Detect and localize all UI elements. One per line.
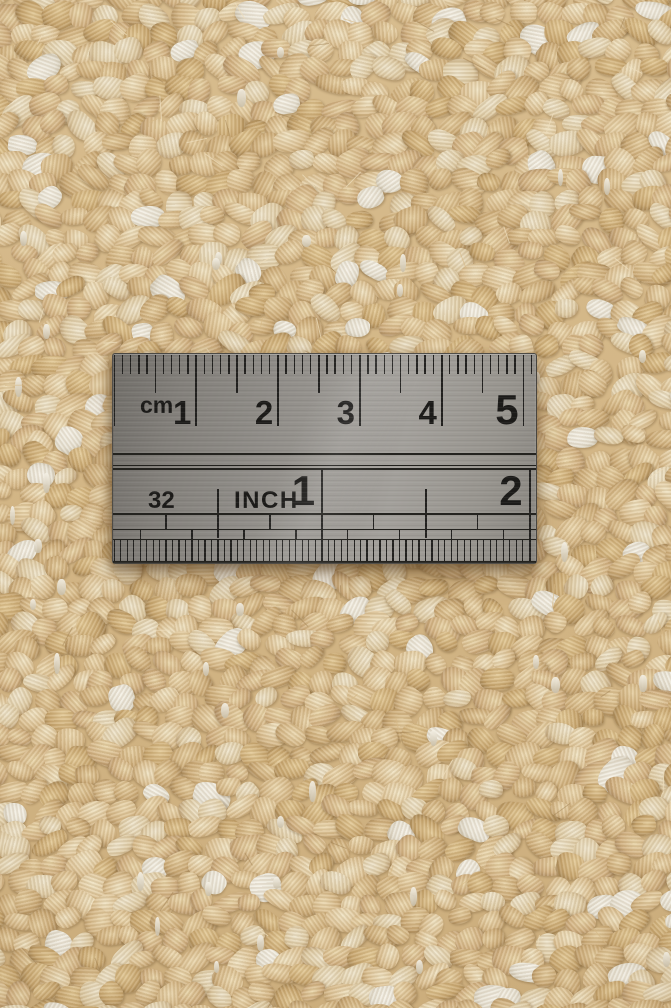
cm-tick — [163, 355, 164, 374]
carpet-warp-gap — [43, 324, 50, 339]
cm-tick — [122, 355, 123, 374]
inch-tick-32nd — [289, 540, 290, 561]
cm-tick — [195, 355, 197, 426]
inch-tick-32nd — [386, 540, 387, 561]
cm-tick — [514, 355, 515, 374]
inch-tick-32nd — [185, 540, 186, 561]
carpet-warp-gap — [558, 169, 564, 186]
cm-tick — [523, 355, 525, 426]
inch-tick-32nd — [379, 540, 380, 561]
inch-tick-32nd — [341, 540, 342, 561]
inch-tick-eighth — [191, 529, 192, 539]
cm-tick — [351, 355, 352, 374]
inch-tick-32nd — [114, 540, 115, 561]
cm-tick — [433, 355, 434, 374]
scale-separator-line — [113, 465, 536, 466]
carpet-warp-gap — [15, 377, 22, 397]
carpet-fiber — [626, 141, 636, 143]
carpet-fiber — [340, 585, 342, 598]
cm-tick — [171, 355, 172, 374]
inch-tick-32nd — [140, 540, 141, 561]
inch-tick-32nd — [153, 540, 154, 561]
cm-tick — [334, 355, 335, 374]
inch-tick-32nd — [483, 540, 484, 561]
inch-tick-32nd — [165, 540, 166, 561]
cm-number: 1 — [173, 396, 190, 429]
inch-tick-32nd — [496, 540, 497, 561]
inch-tick-32nd — [457, 540, 458, 561]
carpet-warp-gap — [20, 231, 27, 246]
carpet-warp-gap — [57, 579, 66, 596]
cm-tick — [253, 355, 254, 374]
carpet-warp-gap — [205, 882, 212, 896]
metal-ruler: cm 32 INCH 1234512 — [112, 353, 537, 564]
cm-tick — [367, 355, 368, 374]
carpet-knot — [554, 298, 579, 319]
cm-tick — [179, 355, 180, 374]
inch-tick-32nd — [431, 540, 432, 561]
cm-tick — [302, 355, 303, 374]
cm-number: 5 — [495, 389, 517, 431]
carpet-fiber — [153, 629, 170, 630]
cm-tick — [326, 355, 327, 374]
cm-tick — [416, 355, 417, 374]
inch-tick-32nd — [230, 540, 231, 561]
inch-tick-32nd — [159, 540, 160, 561]
carpet-warp-gap — [639, 675, 646, 692]
inch-tick-32nd — [315, 540, 316, 561]
inch-tick-32nd — [522, 540, 523, 561]
inch-number: 2 — [499, 470, 521, 512]
inch-tick-32nd — [120, 540, 121, 561]
inch-tick-32nd — [373, 540, 374, 561]
inch-tick-32nd — [503, 540, 504, 561]
carpet-warp-gap — [137, 872, 145, 891]
inch-tick-32nd — [191, 540, 192, 561]
inch-tick-32nd — [295, 540, 296, 561]
inch-tick-32nd — [438, 540, 439, 561]
inch-tick-32nd — [334, 540, 335, 561]
cm-tick — [384, 355, 385, 374]
carpet-warp-gap — [214, 961, 219, 972]
inch-tick-32nd — [250, 540, 251, 561]
carpet-knot — [664, 728, 671, 744]
inch-tick-32nd — [412, 540, 413, 561]
inch-tick-32nd — [405, 540, 406, 561]
cm-tick — [236, 355, 238, 393]
cm-tick — [359, 355, 361, 426]
cm-tick — [244, 355, 245, 374]
carpet-knot — [288, 148, 316, 171]
cm-number: 2 — [255, 396, 272, 429]
inch-tick-eighth — [347, 529, 348, 539]
carpet-knot — [646, 388, 671, 412]
inch-tick-32nd — [133, 540, 134, 561]
cm-tick — [408, 355, 409, 374]
inch-tick-32nd — [444, 540, 445, 561]
inch-tick-32nd — [477, 540, 478, 561]
cm-tick — [261, 355, 262, 374]
inch-tick-32nd — [529, 540, 530, 561]
cm-tick — [294, 355, 295, 374]
inch-tick-32nd — [470, 540, 471, 561]
inch-tick-32nd — [237, 540, 238, 561]
inch-ladder-rail — [113, 529, 536, 530]
inch-unit-label: INCH — [234, 489, 299, 513]
cm-tick — [375, 355, 376, 374]
inch-tick-32nd — [276, 540, 277, 561]
carpet-knot — [200, 206, 224, 224]
cm-unit-label: cm — [140, 394, 173, 417]
inch-tick-32nd — [211, 540, 212, 561]
inch-tick-32nd — [418, 540, 419, 561]
inch-tick-32nd — [308, 540, 309, 561]
cm-tick — [506, 355, 507, 374]
carpet-warp-gap — [273, 877, 280, 889]
cm-tick — [392, 355, 393, 374]
scale-separator-line — [113, 453, 536, 455]
inch-tick-32nd — [392, 540, 393, 561]
inch-tick-32nd — [328, 540, 329, 561]
inch-tick-32nd — [321, 540, 322, 561]
cm-tick — [138, 355, 139, 374]
inch-tick-32nd — [302, 540, 303, 561]
inch-tick-32nd — [354, 540, 355, 561]
carpet-warp-gap — [430, 730, 437, 746]
inch-tick-32nd — [172, 540, 173, 561]
inch-number: 1 — [292, 470, 314, 512]
carpet-warp-gap — [54, 653, 60, 674]
carpet-warp-gap — [203, 662, 209, 677]
inch-tick-32nd — [198, 540, 199, 561]
inch-tick-32nd — [425, 540, 426, 561]
inch-tick-32nd — [399, 540, 400, 561]
carpet-warp-gap — [221, 703, 229, 718]
cm-tick — [465, 355, 466, 374]
cm-tick — [220, 355, 221, 374]
inch-tick-eighth — [140, 529, 141, 539]
cm-tick — [531, 355, 532, 374]
inch-tick-quarter — [477, 513, 479, 530]
cm-number: 3 — [337, 396, 354, 429]
cm-tick — [424, 355, 425, 374]
carpet-warp-gap — [34, 539, 42, 553]
cm-tick — [457, 355, 458, 374]
inch-tick-32nd — [243, 540, 244, 561]
scale-separator-line — [113, 468, 536, 470]
inch-tick-eighth — [451, 529, 452, 539]
inch-tick-32nd — [490, 540, 491, 561]
inch-tick-eighth — [503, 529, 504, 539]
inch-tick-32nd — [204, 540, 205, 561]
carpet-knot — [483, 815, 509, 837]
inch-tick-eighth — [295, 529, 296, 539]
cm-tick — [318, 355, 320, 393]
cm-tick — [187, 355, 188, 374]
inch-ladder-rail — [113, 539, 536, 540]
carpet-warp-gap — [257, 935, 263, 951]
carpet-knot — [659, 887, 671, 912]
inch-tick-32nd — [256, 540, 257, 561]
inch-tick-32nd — [347, 540, 348, 561]
cm-tick — [228, 355, 229, 374]
cm-tick — [449, 355, 450, 374]
cm-tick — [490, 355, 491, 374]
cm-tick — [441, 355, 443, 426]
inch-tick-32nd — [509, 540, 510, 561]
carpet-knot — [658, 410, 671, 431]
inch-fraction-label: 32 — [148, 489, 175, 513]
carpet-warp-gap — [533, 655, 539, 669]
inch-tick-32nd — [516, 540, 517, 561]
inch-tick-32nd — [217, 540, 218, 561]
carpet-warp-gap — [604, 178, 610, 195]
cm-tick — [204, 355, 205, 374]
carpet-knot — [479, 667, 513, 690]
carpet-warp-gap — [212, 258, 220, 270]
cm-tick — [482, 355, 484, 393]
cm-number: 4 — [418, 396, 435, 429]
cm-tick — [310, 355, 311, 374]
cm-tick — [155, 355, 157, 393]
carpet-knot — [418, 578, 448, 597]
inch-tick-32nd — [146, 540, 147, 561]
inch-tick-quarter — [269, 513, 271, 530]
inch-ladder-rail — [113, 513, 536, 515]
cm-tick — [400, 355, 402, 393]
carpet-knot — [646, 430, 671, 448]
carpet-warp-gap — [236, 603, 244, 616]
cm-tick — [212, 355, 213, 374]
inch-tick-eighth — [243, 529, 244, 539]
inch-tick-32nd — [464, 540, 465, 561]
cm-tick — [114, 355, 116, 426]
cm-tick — [146, 355, 147, 374]
inch-tick-32nd — [451, 540, 452, 561]
cm-tick — [285, 355, 286, 374]
cm-tick — [343, 355, 344, 374]
cm-tick — [474, 355, 475, 374]
carpet-warp-gap — [237, 89, 246, 107]
cm-tick — [269, 355, 270, 374]
inch-comb-baseline — [113, 561, 536, 563]
carpet-knot — [581, 708, 605, 727]
cm-tick — [498, 355, 499, 374]
carpet-warp-gap — [663, 952, 670, 967]
carpet-warp-gap — [30, 599, 36, 611]
carpet-warp-gap — [277, 47, 284, 58]
cm-tick — [277, 355, 279, 426]
carpet-warp-gap — [155, 917, 160, 936]
inch-tick-32nd — [224, 540, 225, 561]
inch-tick-32nd — [127, 540, 128, 561]
photo-root: cm 32 INCH 1234512 — [0, 0, 671, 1008]
cm-tick — [130, 355, 131, 374]
inch-tick-32nd — [178, 540, 179, 561]
inch-tick-32nd — [269, 540, 270, 561]
inch-tick-32nd — [282, 540, 283, 561]
inch-tick-32nd — [263, 540, 264, 561]
carpet-knot — [479, 780, 504, 799]
inch-tick-quarter — [373, 513, 375, 530]
carpet-warp-gap — [302, 235, 311, 247]
inch-tick-eighth — [399, 529, 400, 539]
inch-tick-32nd — [366, 540, 367, 561]
inch-tick-quarter — [165, 513, 167, 530]
inch-tick-32nd — [360, 540, 361, 561]
